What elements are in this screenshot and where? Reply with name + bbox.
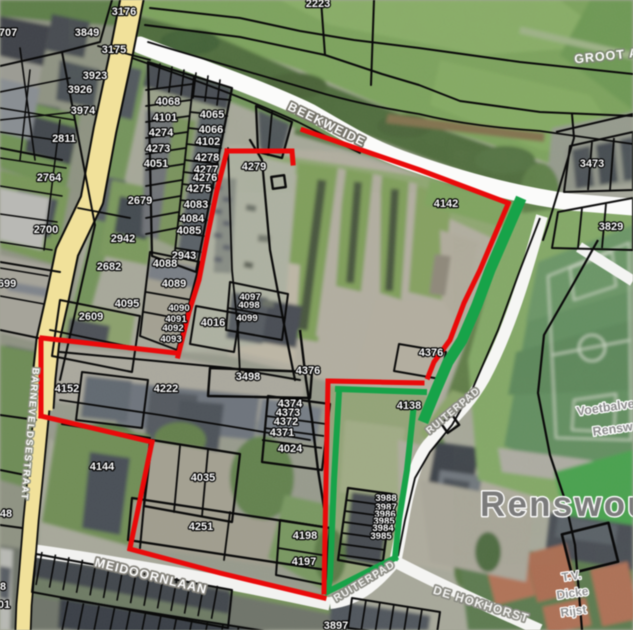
svg-text:4098: 4098: [238, 300, 260, 311]
svg-text:8: 8: [0, 581, 6, 593]
svg-text:3498: 3498: [236, 371, 260, 383]
svg-text:4093: 4093: [160, 334, 181, 345]
svg-text:4099: 4099: [236, 313, 257, 324]
svg-text:4095: 4095: [115, 298, 139, 310]
svg-text:699: 699: [0, 278, 16, 290]
svg-text:4371: 4371: [270, 427, 294, 439]
svg-text:4083: 4083: [184, 199, 208, 211]
svg-text:4138: 4138: [397, 400, 421, 412]
svg-text:4251: 4251: [189, 521, 213, 533]
svg-text:01: 01: [0, 599, 10, 611]
svg-text:4275: 4275: [187, 183, 211, 195]
svg-text:48: 48: [0, 508, 12, 520]
svg-text:4222: 4222: [154, 383, 178, 395]
svg-text:4016: 4016: [201, 317, 225, 329]
svg-text:4085: 4085: [177, 225, 201, 237]
svg-text:3926: 3926: [68, 84, 92, 96]
svg-text:4273: 4273: [146, 143, 170, 155]
svg-text:T.V.: T.V.: [561, 568, 582, 585]
svg-text:2811: 2811: [52, 133, 76, 145]
svg-text:2700: 2700: [34, 224, 58, 236]
svg-text:4084: 4084: [180, 213, 205, 225]
svg-text:4152: 4152: [55, 383, 79, 395]
svg-text:4066: 4066: [199, 124, 223, 136]
svg-text:3849: 3849: [75, 27, 99, 39]
svg-text:4065: 4065: [200, 109, 224, 121]
svg-text:4035: 4035: [191, 472, 215, 484]
svg-text:4142: 4142: [434, 198, 458, 210]
svg-text:4068: 4068: [156, 96, 180, 108]
svg-text:4274: 4274: [149, 127, 174, 139]
svg-text:3923: 3923: [83, 70, 107, 82]
svg-text:2223: 2223: [306, 0, 330, 10]
svg-text:4024: 4024: [278, 443, 303, 455]
svg-text:4198: 4198: [293, 530, 317, 542]
svg-text:3897: 3897: [324, 620, 348, 630]
svg-text:4101: 4101: [153, 112, 177, 124]
svg-text:4376: 4376: [419, 347, 443, 359]
svg-text:4088: 4088: [153, 258, 177, 270]
svg-text:4089: 4089: [162, 278, 186, 290]
svg-text:3175: 3175: [102, 44, 126, 56]
svg-text:4090: 4090: [168, 303, 189, 314]
svg-text:4279: 4279: [242, 161, 266, 173]
svg-text:4051: 4051: [144, 158, 168, 170]
svg-text:3985: 3985: [370, 531, 392, 542]
svg-text:2682: 2682: [97, 261, 121, 273]
svg-text:2679: 2679: [128, 195, 152, 207]
svg-text:4092: 4092: [162, 323, 183, 334]
svg-text:3176: 3176: [112, 6, 136, 18]
svg-text:2609: 2609: [79, 311, 103, 323]
svg-text:3974: 3974: [71, 105, 96, 117]
svg-text:4197: 4197: [292, 556, 316, 568]
svg-text:4278: 4278: [195, 152, 219, 164]
svg-text:3473: 3473: [580, 158, 604, 170]
svg-text:2942: 2942: [111, 233, 135, 245]
svg-text:2764: 2764: [37, 172, 62, 184]
svg-text:4376: 4376: [296, 365, 320, 377]
svg-text:707: 707: [0, 27, 17, 39]
svg-text:4144: 4144: [90, 461, 115, 473]
svg-text:3829: 3829: [599, 221, 623, 233]
svg-text:Renswoude: Renswoude: [480, 485, 633, 524]
svg-text:4102: 4102: [196, 136, 220, 148]
